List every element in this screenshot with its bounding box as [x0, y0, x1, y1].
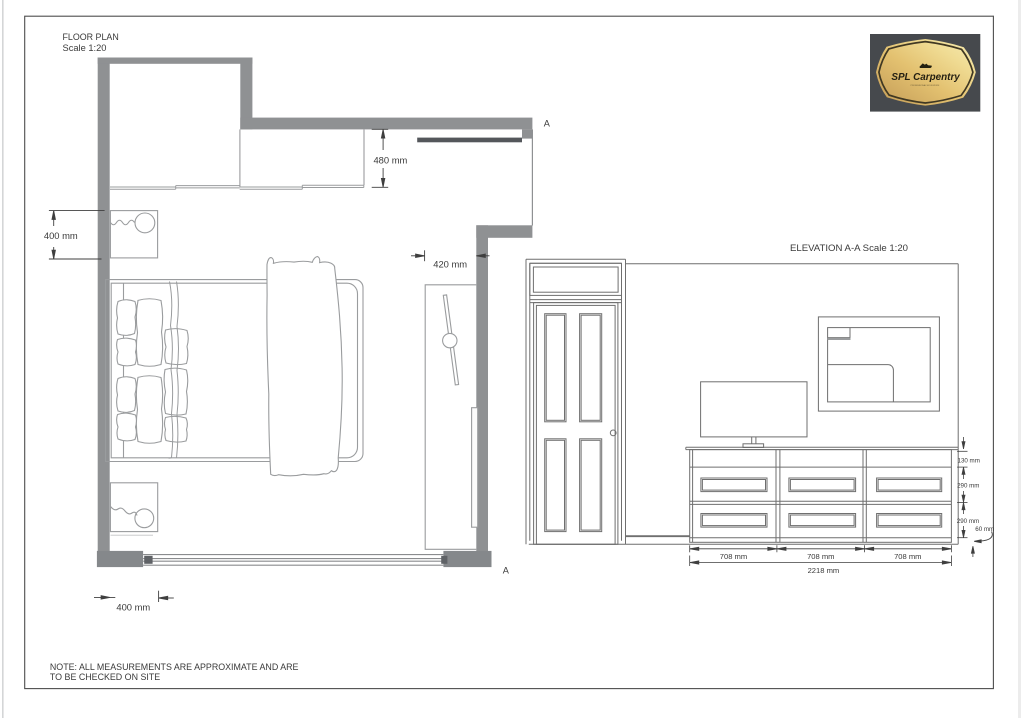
svg-text:708 mm: 708 mm	[807, 552, 834, 561]
svg-text:60 mm: 60 mm	[975, 526, 994, 533]
svg-text:Scale 1:20: Scale 1:20	[63, 43, 107, 53]
svg-text:A: A	[544, 119, 551, 129]
svg-text:ELEVATION A-A Scale 1:20: ELEVATION A-A Scale 1:20	[790, 243, 908, 254]
svg-text:400 mm: 400 mm	[116, 602, 150, 613]
svg-text:FLOOR PLAN: FLOOR PLAN	[63, 32, 119, 42]
svg-text:130 mm: 130 mm	[958, 458, 980, 465]
svg-text:708 mm: 708 mm	[894, 552, 921, 561]
svg-text:290 mm: 290 mm	[957, 483, 979, 490]
svg-text:TO BE CHECKED ON SITE: TO BE CHECKED ON SITE	[50, 672, 160, 682]
svg-text:708 mm: 708 mm	[720, 552, 747, 561]
svg-text:PROFESSIONAL WOODWORK: PROFESSIONAL WOODWORK	[911, 84, 940, 87]
svg-text:SPL Carpentry: SPL Carpentry	[891, 72, 960, 83]
svg-text:420 mm: 420 mm	[433, 259, 467, 270]
svg-text:290 mm: 290 mm	[957, 518, 979, 525]
svg-text:NOTE: ALL MEASUREMENTS ARE APP: NOTE: ALL MEASUREMENTS ARE APPROXIMATE A…	[50, 662, 299, 672]
svg-text:400 mm: 400 mm	[44, 230, 78, 241]
svg-text:A: A	[503, 566, 510, 576]
svg-text:2218 mm: 2218 mm	[808, 566, 840, 575]
svg-text:480 mm: 480 mm	[373, 154, 407, 165]
